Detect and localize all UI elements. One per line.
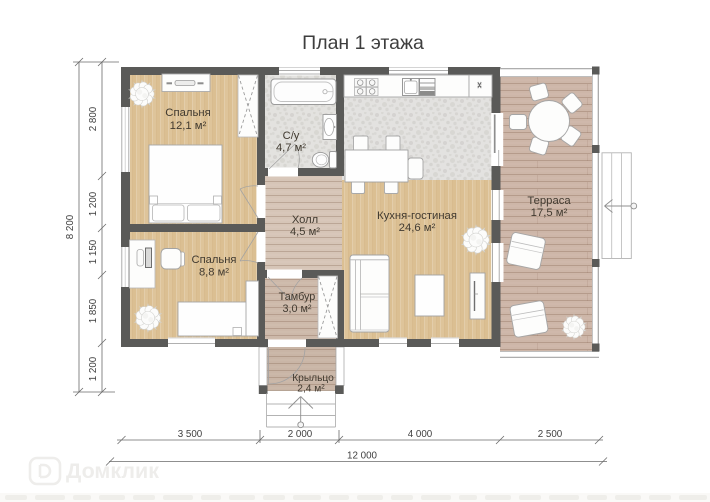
svg-text:24,6 м²: 24,6 м² xyxy=(399,222,436,234)
svg-text:1 850: 1 850 xyxy=(88,298,99,323)
svg-text:4,5 м²: 4,5 м² xyxy=(290,226,320,238)
svg-text:С/у: С/у xyxy=(283,130,300,142)
svg-text:12,1 м²: 12,1 м² xyxy=(170,120,207,132)
svg-text:Тамбур: Тамбур xyxy=(279,291,316,303)
svg-text:Холл: Холл xyxy=(292,214,318,226)
svg-text:8,8 м²: 8,8 м² xyxy=(199,267,229,279)
svg-text:Спальня: Спальня xyxy=(165,107,210,119)
svg-text:4 000: 4 000 xyxy=(408,429,433,440)
svg-text:3,0 м²: 3,0 м² xyxy=(282,303,311,315)
svg-text:12 000: 12 000 xyxy=(347,451,378,462)
svg-text:Крыльцо: Крыльцо xyxy=(292,373,334,384)
svg-text:17,5 м²: 17,5 м² xyxy=(531,207,568,219)
svg-text:План 1 этажа: План 1 этажа xyxy=(302,32,424,54)
svg-text:8 200: 8 200 xyxy=(65,214,76,239)
svg-text:Домклик: Домклик xyxy=(66,459,159,483)
svg-text:Кухня-гостиная: Кухня-гостиная xyxy=(377,210,457,222)
svg-text:2,4 м²: 2,4 м² xyxy=(297,384,325,395)
svg-text:1 200: 1 200 xyxy=(88,356,99,381)
svg-text:2 800: 2 800 xyxy=(88,106,99,131)
svg-text:2 500: 2 500 xyxy=(538,429,563,440)
svg-text:3 500: 3 500 xyxy=(178,429,203,440)
svg-text:Терраса: Терраса xyxy=(527,195,571,207)
svg-text:1 200: 1 200 xyxy=(88,191,99,216)
svg-text:1 150: 1 150 xyxy=(88,239,99,264)
svg-text:4,7 м²: 4,7 м² xyxy=(276,142,306,154)
svg-text:Спальня: Спальня xyxy=(192,254,237,266)
svg-text:2 000: 2 000 xyxy=(288,429,313,440)
